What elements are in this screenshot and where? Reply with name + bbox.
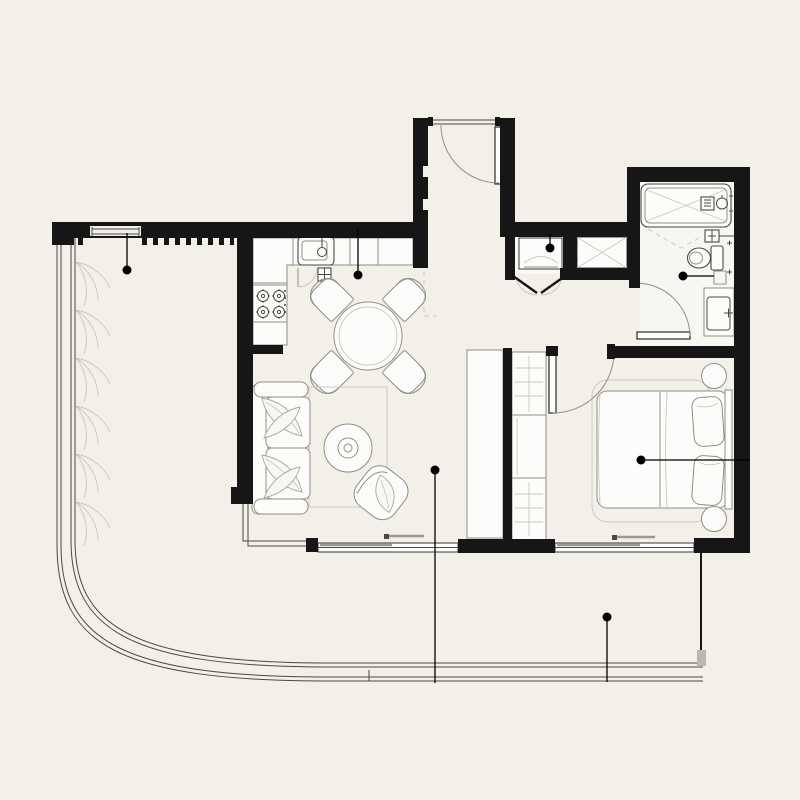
tv-cabinet — [467, 350, 503, 538]
pillow — [691, 455, 724, 506]
washing-machine — [519, 238, 562, 269]
wall-slot — [90, 226, 141, 236]
floor-plan-canvas — [0, 0, 800, 800]
bedroom — [549, 352, 732, 532]
dining-set — [305, 273, 432, 400]
entry-hall — [424, 120, 502, 316]
wardrobe — [512, 352, 546, 540]
cabinet-door-swing — [298, 268, 317, 287]
nightstand — [702, 364, 727, 389]
washbasin — [704, 288, 734, 336]
entry-door — [428, 120, 502, 184]
sofa — [252, 382, 310, 514]
terrace-marker — [603, 613, 612, 622]
utility-closet — [513, 237, 565, 295]
bathroom — [637, 182, 734, 346]
coffee-table — [324, 424, 372, 472]
nightstand — [702, 507, 727, 532]
wall-hatch-teeth — [56, 238, 234, 245]
cooktop — [253, 285, 287, 322]
bathroom-marker — [679, 272, 688, 281]
opening-dashed-line — [424, 271, 437, 316]
kitchen-marker — [354, 271, 363, 280]
living-marker — [431, 466, 440, 475]
bifold-doors — [513, 276, 565, 295]
utility-marker — [546, 244, 555, 253]
kitchen-sink — [298, 237, 334, 265]
headboard — [725, 390, 732, 509]
bathtub — [641, 184, 733, 227]
terrace-railing — [697, 553, 706, 666]
double-bed — [597, 390, 732, 509]
balcony-marker — [123, 266, 132, 275]
dining-table — [334, 302, 402, 370]
bedroom-marker — [637, 456, 646, 465]
living-room — [252, 382, 414, 526]
ventilation-shaft — [577, 237, 627, 268]
folding-panel-icon — [76, 262, 110, 546]
pillow — [691, 396, 724, 447]
